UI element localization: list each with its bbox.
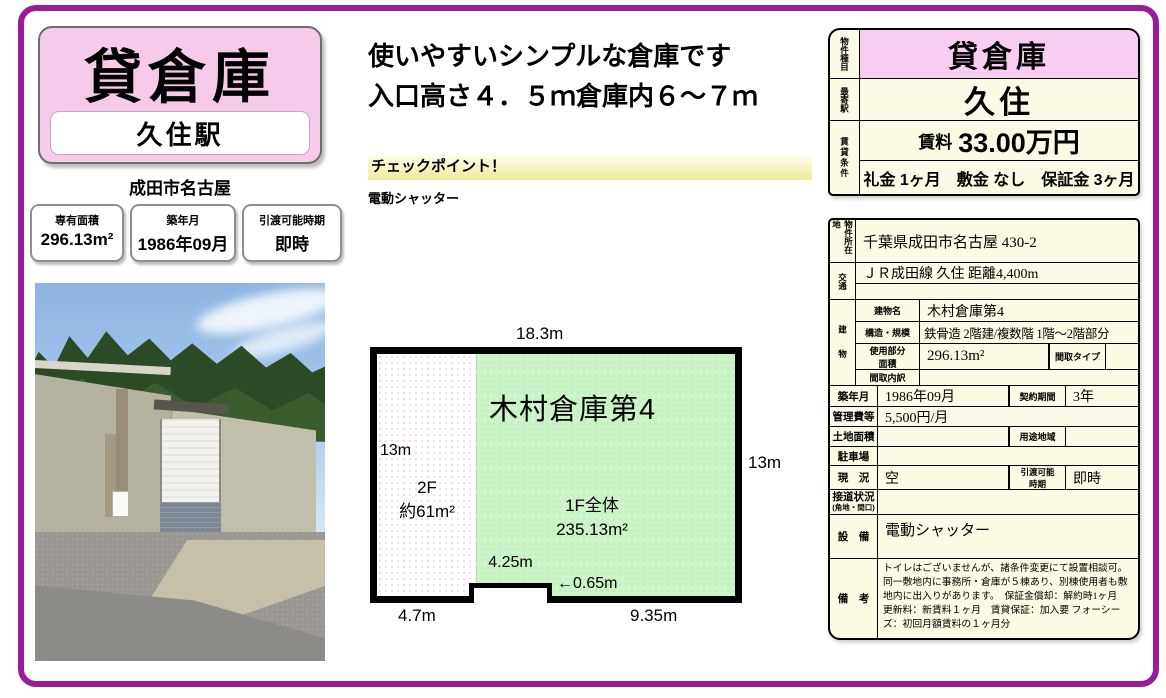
- plan-2f-title: 2F: [377, 476, 477, 500]
- plan-dim-bottom-right: 9.35m: [630, 606, 677, 626]
- summary-table: 物件種目 貸倉庫 最寄駅 久住 賃貸条件 賃料 33.00万円 礼金 1ヶ月 敷…: [828, 28, 1140, 196]
- parking-value: [878, 447, 1138, 465]
- remarks-value: トイレはございませんが、諸条件変更にて設置相談可。同一敷地内に事務所・倉庫が５棟…: [878, 559, 1138, 638]
- plan-dim-right: 13m: [748, 453, 781, 473]
- structure-value: 鉄骨造 2階建/複数階 1階～2階部分: [920, 322, 1138, 343]
- handover-value: 即時: [1066, 466, 1138, 489]
- info-box-handover: 引渡可能時期 即時: [242, 204, 342, 262]
- plan-2f-label: 2F 約61m²: [377, 476, 477, 524]
- title-box: 貸倉庫 久住駅: [38, 26, 322, 164]
- checkpoint-heading: チェックポイント！: [371, 158, 506, 175]
- plan-2f-area: [377, 354, 477, 596]
- built-value: 1986年09月: [878, 386, 1008, 406]
- land-area-label: 土地面積: [830, 427, 878, 446]
- photo-wall-sign: [112, 491, 129, 517]
- address-text: 成田市名古屋: [38, 174, 322, 199]
- access-line2: [856, 284, 1138, 299]
- row-remarks: 備 考 トイレはございませんが、諸条件変更にて設置相談可。同一敷地内に事務所・倉…: [830, 558, 1138, 638]
- row-road: 接道状況 (角地・間口): [830, 489, 1138, 514]
- remarks-label: 備 考: [830, 559, 878, 638]
- info-value: 1986年09月: [132, 230, 234, 255]
- plan-dim-notch-depth: ←0.65m: [557, 575, 617, 593]
- detail-table: 物件所在地 千葉県成田市名古屋 430-2 交通 ＪＲ成田線 久住 距離4,40…: [828, 218, 1140, 640]
- plan-dim-bottom-left: 4.7m: [398, 606, 436, 626]
- layout-detail-label: 間取内訳: [856, 370, 920, 385]
- station-label: 最寄駅: [830, 79, 860, 120]
- row-built: 築年月 1986年09月 契約期間 3年: [830, 385, 1138, 406]
- zoning-label: 用途地域: [1008, 427, 1066, 446]
- info-label: 引渡可能時期: [244, 212, 340, 228]
- equipment-value: 電動シャッター: [878, 515, 1138, 558]
- station-box: 久住駅: [50, 111, 310, 155]
- access-label: 交通: [830, 263, 856, 299]
- status-value: 空: [878, 466, 1008, 489]
- built-label: 築年月: [830, 386, 878, 406]
- plan-dim-left: 13m: [380, 442, 411, 460]
- row-land-area: 土地面積 用途地域: [830, 426, 1138, 446]
- terms-value: 礼金 1ヶ月 敷金 なし 保証金 3ヶ月: [860, 161, 1138, 194]
- row-building: 建物 建物名 木村倉庫第4 構造・規模 鉄骨造 2階建/複数階 1階～2階部分 …: [830, 299, 1138, 385]
- row-equipment: 設 備 電動シャッター: [830, 514, 1138, 558]
- plan-dim-top: 18.3m: [516, 324, 563, 344]
- info-label: 専有面積: [32, 212, 122, 228]
- plan-2f-area-value: 約61m²: [377, 500, 477, 524]
- layout-detail-value: [920, 370, 1138, 385]
- summary-row-property-type: 物件種目 貸倉庫: [830, 30, 1138, 78]
- zoning-value: [1066, 427, 1138, 446]
- building-name-value: 木村倉庫第4: [920, 300, 1138, 321]
- checkpoint-item: 電動シャッター: [368, 188, 459, 207]
- property-type-value: 貸倉庫: [860, 30, 1138, 78]
- rent-value: 33.00万円: [958, 121, 1080, 160]
- tagline-line2: 入口高さ４．５ｍ倉庫内６～７ｍ: [368, 76, 838, 116]
- floor-plan: 木村倉庫第4 13m 2F 約61m² 1F全体 235.13m² 4.25m …: [370, 347, 742, 603]
- building-label: 建物: [830, 300, 856, 385]
- row-status: 現 況 空 引渡可能時期 即時: [830, 465, 1138, 489]
- tagline: 使いやすいシンプルな倉庫です 入口高さ４．５ｍ倉庫内６～７ｍ: [368, 36, 838, 116]
- property-type-label: 物件種目: [830, 30, 860, 78]
- info-value: 296.13m²: [32, 230, 122, 250]
- layout-type-value: [1106, 344, 1138, 369]
- building-name-label: 建物名: [856, 300, 920, 321]
- plan-1f-label: 1F全体 235.13m²: [507, 494, 677, 542]
- row-mgmt-fee: 管理費等 5,500円/月: [830, 406, 1138, 426]
- location-value: 千葉県成田市名古屋 430-2: [856, 220, 1138, 262]
- summary-row-station: 最寄駅 久住: [830, 78, 1138, 120]
- plan-1f-area-value: 235.13m²: [507, 518, 677, 542]
- summary-row-terms: 賃貸条件 賃料 33.00万円 礼金 1ヶ月 敷金 なし 保証金 3ヶ月: [830, 120, 1138, 194]
- plan-building-name: 木村倉庫第4: [489, 386, 656, 428]
- parking-label: 駐車場: [830, 447, 878, 465]
- location-label: 物件所在地: [830, 220, 856, 262]
- info-label: 築年月: [132, 212, 234, 228]
- terms-label: 賃貸条件: [830, 121, 860, 194]
- road-label: 接道状況 (角地・間口): [830, 490, 878, 514]
- structure-label: 構造・規模: [856, 322, 920, 343]
- used-area-value: 296.13m²: [920, 344, 1048, 369]
- status-label: 現 況: [830, 466, 878, 489]
- photo-wall-panel: [116, 389, 128, 502]
- plan-entrance-notch: [469, 583, 552, 603]
- row-parking: 駐車場: [830, 446, 1138, 465]
- info-value: 即時: [244, 230, 340, 255]
- road-value: [878, 490, 1138, 514]
- mgmt-fee-value: 5,500円/月: [878, 407, 1138, 426]
- row-location: 物件所在地 千葉県成田市名古屋 430-2: [830, 220, 1138, 262]
- info-box-area: 専有面積 296.13m²: [30, 204, 124, 262]
- access-line1: ＪＲ成田線 久住 距離4,400m: [856, 263, 1138, 284]
- row-access: 交通 ＪＲ成田線 久住 距離4,400m: [830, 262, 1138, 299]
- rent-cell: 賃料 33.00万円: [860, 121, 1138, 161]
- station-name: 久住駅: [136, 115, 223, 152]
- checkpoint-band: チェックポイント！: [368, 154, 812, 180]
- contract-label: 契約期間: [1008, 386, 1066, 406]
- mgmt-fee-label: 管理費等: [830, 407, 878, 426]
- plan-dim-notch-width: 4.25m: [469, 554, 552, 572]
- flyer-page: 貸倉庫 久住駅 成田市名古屋 専有面積 296.13m² 築年月 1986年09…: [0, 0, 1166, 698]
- used-area-label: 使用部分面積: [856, 344, 920, 369]
- station-value: 久住: [860, 79, 1138, 120]
- warehouse-photo: [35, 283, 325, 661]
- info-box-built: 築年月 1986年09月: [130, 204, 236, 262]
- tagline-line1: 使いやすいシンプルな倉庫です: [368, 36, 838, 76]
- page-title: 貸倉庫: [40, 30, 320, 114]
- rent-label: 賃料: [918, 128, 952, 153]
- land-area-value: [878, 427, 1008, 446]
- handover-label: 引渡可能時期: [1008, 466, 1066, 489]
- contract-value: 3年: [1066, 386, 1138, 406]
- plan-1f-title: 1F全体: [507, 494, 677, 518]
- layout-type-label: 間取タイプ: [1048, 344, 1106, 369]
- equipment-label: 設 備: [830, 515, 878, 558]
